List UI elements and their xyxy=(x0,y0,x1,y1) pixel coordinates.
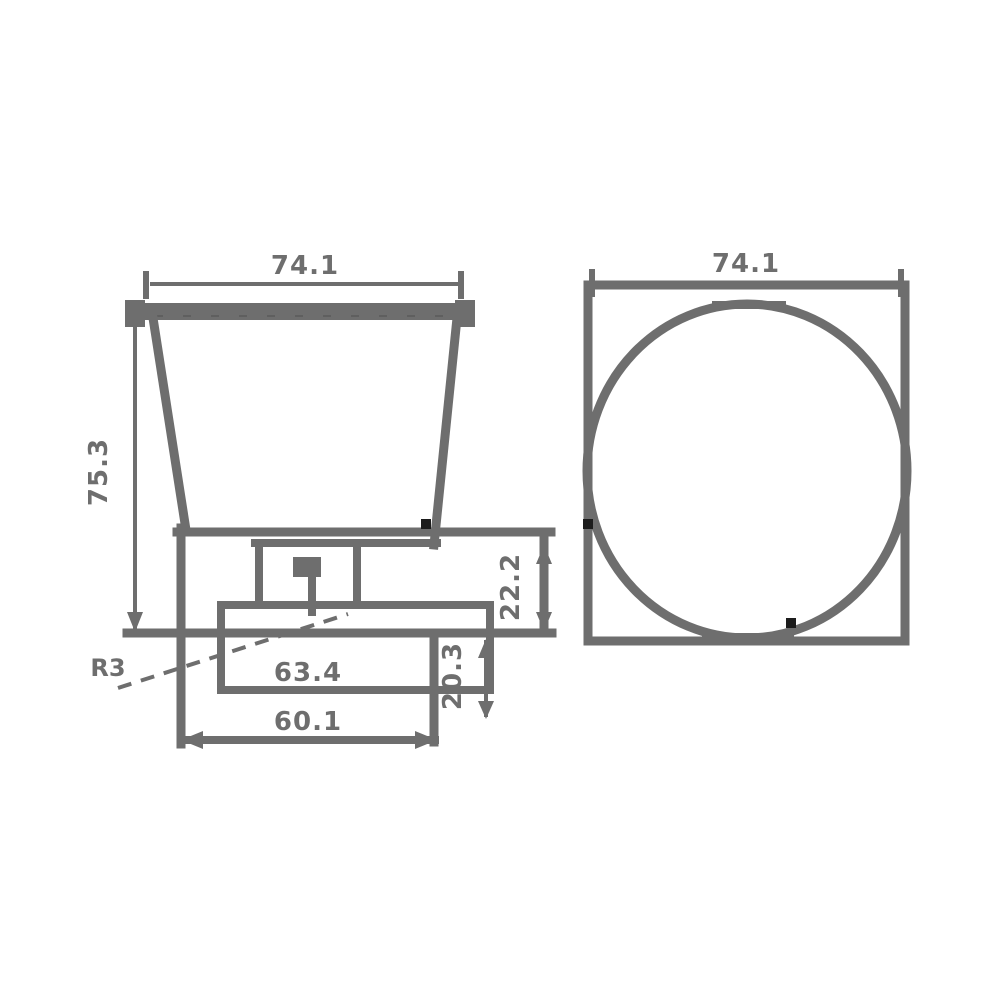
base-width-dimension: 60.1 xyxy=(181,707,437,749)
front-view: 74.1 75.3 63.4 60.1 22.2 xyxy=(84,251,552,749)
bucket-rim xyxy=(125,300,475,327)
base-width-label: 60.1 xyxy=(274,707,342,737)
drawing-canvas: 74.1 75.3 63.4 60.1 22.2 xyxy=(0,0,1000,1000)
front-top-dimension: 74.1 xyxy=(146,251,461,299)
flange-circle xyxy=(587,304,907,638)
plate-width-label: 63.4 xyxy=(274,658,342,688)
front-height-label: 75.3 xyxy=(84,438,114,506)
base-center-detail xyxy=(293,557,321,577)
side-view: 74.1 xyxy=(583,249,907,641)
side-top-width-label: 74.1 xyxy=(712,249,780,279)
speckle xyxy=(421,519,431,529)
bucket-left-wall xyxy=(153,318,186,530)
lower-height-label: 20.3 xyxy=(438,642,468,710)
technical-drawing-page: 74.1 75.3 63.4 60.1 22.2 xyxy=(0,0,1000,1000)
bucket-right-wall xyxy=(434,318,457,545)
speckle xyxy=(583,519,593,529)
side-top-dimension: 74.1 xyxy=(592,249,901,297)
lower-height-dimension: 20.3 xyxy=(438,639,494,719)
front-height-dimension: 75.3 xyxy=(84,306,143,632)
radius-label: R3 xyxy=(90,654,125,682)
base-height-label: 22.2 xyxy=(496,553,526,621)
front-top-width-label: 74.1 xyxy=(271,251,339,281)
speckle xyxy=(786,618,796,628)
